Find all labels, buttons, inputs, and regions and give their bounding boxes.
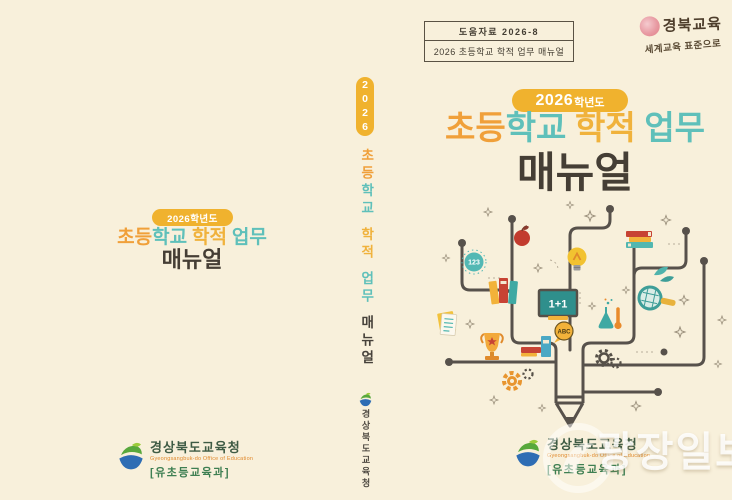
gear-orange-icon [504, 370, 533, 390]
spine-org-logo-icon [358, 392, 373, 407]
spine-title-part: 업무 [359, 271, 374, 306]
brand-name: 경북교육 [662, 13, 722, 36]
org-name-en: Gyeongsangbuk-do Office of Education [150, 456, 253, 462]
spine-year: 2026 [359, 79, 371, 135]
svg-text:1+1: 1+1 [549, 299, 568, 311]
books-small-icon [521, 336, 551, 357]
front-title-part: 학적 [575, 111, 636, 144]
back-subtitle: 매뉴얼 [72, 249, 312, 271]
thermometer-icon [614, 309, 621, 329]
spine-title: 초등학교학적업무매뉴얼 [359, 148, 373, 368]
back-title-part: 초등 [117, 228, 152, 247]
number-badge-icon: 123 [462, 250, 486, 274]
spine-title-part: 학적 [359, 227, 374, 262]
flask-icon [599, 299, 622, 330]
trophy-icon [481, 333, 503, 360]
pencil-trunk-icon [556, 350, 583, 426]
svg-text:ABC: ABC [558, 329, 572, 335]
org-block-left: 경상북도교육청 Gyeongsangbuk-do Office of Educa… [116, 441, 253, 480]
front-subtitle: 매뉴얼 [426, 152, 724, 194]
idea-tree-illustration: 123 1+1 [430, 200, 732, 435]
org-name: 경상북도교육청 [150, 441, 253, 455]
brand-stamp: 경북교육 세계교육 표준으로 [639, 12, 732, 53]
books-stack-icon [626, 231, 653, 248]
spine-title-part: 초등 [359, 148, 374, 183]
back-year-badge: 2026학년도 [152, 209, 233, 226]
org-logo-icon [513, 438, 543, 468]
org-logo-icon [116, 441, 146, 471]
front-badge-suffix: 학년도 [574, 94, 604, 110]
spine-year-badge: 2026 [356, 77, 374, 136]
back-title: 초등학교학적업무 [72, 228, 312, 247]
svg-text:123: 123 [468, 260, 480, 267]
front-title-part: 학교 [506, 111, 567, 144]
reference-title: 2026 초등학교 학적 업무 매뉴얼 [425, 41, 573, 61]
front-title: 초등학교학적업무 [426, 111, 724, 144]
reference-box: 도움자료 2026-8 2026 초등학교 학적 업무 매뉴얼 [424, 21, 574, 62]
front-title-part: 업무 [644, 111, 705, 144]
back-title-part: 학교 [152, 228, 187, 247]
books-icon [488, 278, 518, 305]
chalkboard-icon: 1+1 [539, 290, 577, 320]
front-badge-year: 2026 [536, 92, 574, 110]
back-title-part: 학적 [192, 228, 227, 247]
watermark-text: 광장일보 [596, 432, 732, 473]
apple-icon [514, 225, 530, 246]
magnifier-icon [637, 285, 678, 314]
documents-icon [437, 311, 457, 336]
manual-cover-scan: 도움자료 2026-8 2026 초등학교 학적 업무 매뉴얼 경북교육 세계교… [0, 0, 732, 500]
brand-slogan: 세계교육 표준으로 [644, 34, 732, 56]
spine-title-part: 학교 [359, 183, 374, 218]
reference-number: 도움자료 2026-8 [425, 22, 573, 41]
spine-publisher: 경상북도교육청 [360, 409, 373, 490]
back-title-part: 업무 [232, 228, 267, 247]
spine-title-part: 매뉴얼 [359, 315, 374, 368]
org-dept: [유초등교육과] [150, 464, 253, 480]
front-title-part: 초등 [445, 111, 506, 144]
seal-icon [639, 15, 660, 36]
